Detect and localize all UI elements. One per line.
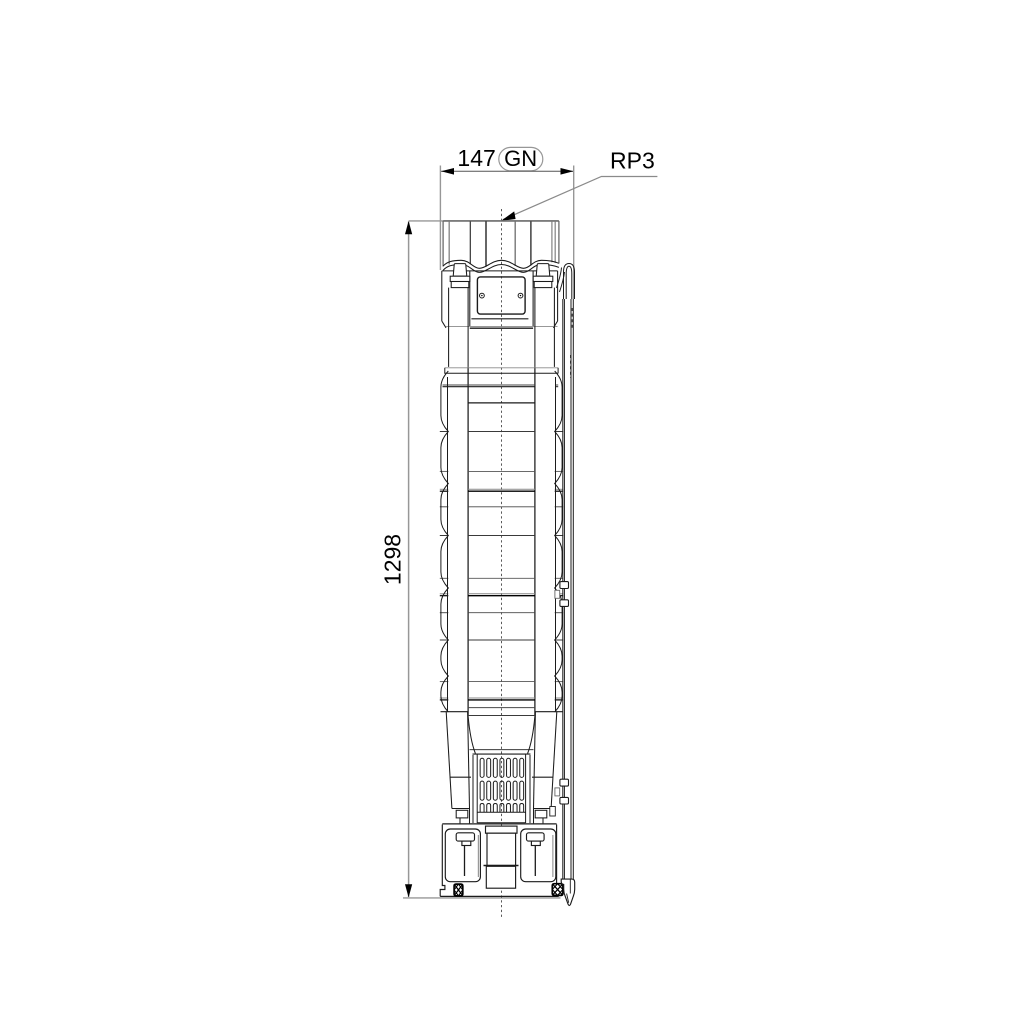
svg-text:1298: 1298 [380, 534, 406, 585]
svg-text:GN: GN [504, 146, 537, 171]
svg-text:RP3: RP3 [610, 148, 655, 174]
svg-text:147: 147 [457, 145, 495, 171]
